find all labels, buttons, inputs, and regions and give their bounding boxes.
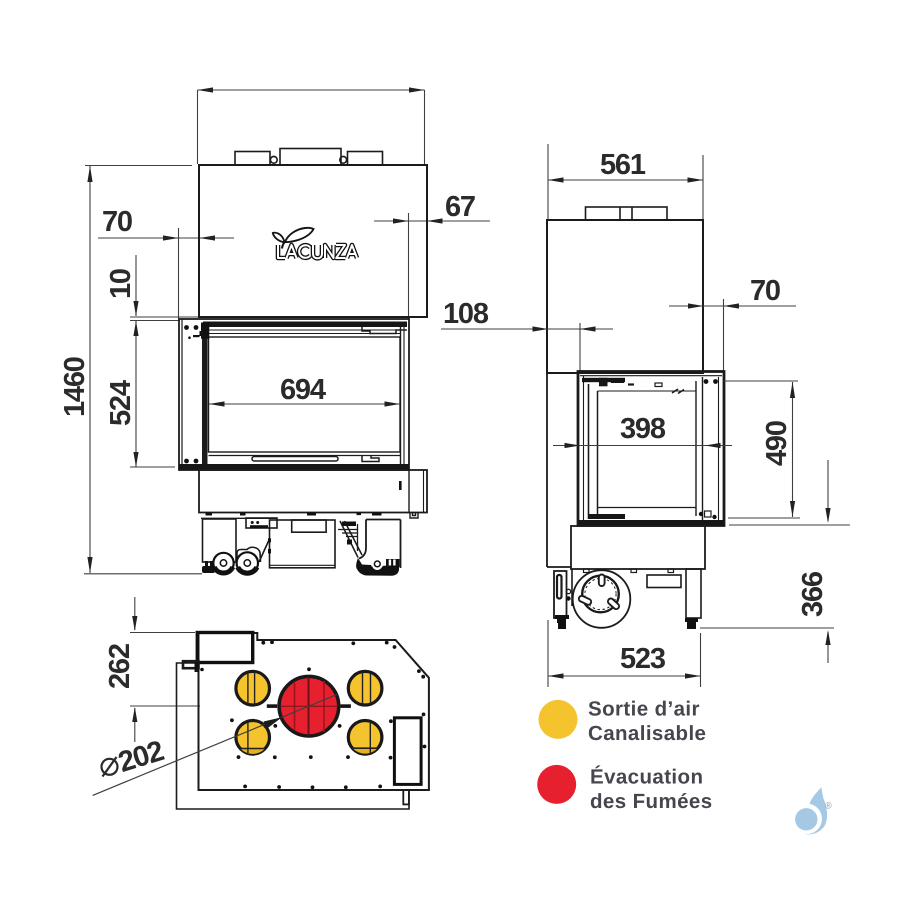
svg-text:523: 523 [620, 643, 666, 675]
svg-text:67: 67 [445, 191, 475, 223]
svg-text:Canalisable: Canalisable [588, 722, 706, 745]
svg-text:366: 366 [797, 571, 829, 617]
svg-text:Sortie d’air: Sortie d’air [588, 698, 700, 721]
svg-text:®: ® [825, 801, 832, 811]
svg-text:262: 262 [104, 644, 136, 689]
svg-text:694: 694 [280, 374, 326, 406]
svg-text:108: 108 [443, 298, 489, 330]
svg-text:1460: 1460 [59, 357, 91, 417]
svg-text:Évacuation: Évacuation [590, 764, 703, 788]
svg-text:70: 70 [750, 275, 780, 307]
svg-text:524: 524 [105, 380, 137, 426]
svg-text:des Fumées: des Fumées [590, 790, 713, 813]
svg-text:70: 70 [102, 206, 132, 238]
svg-text:561: 561 [600, 149, 646, 181]
svg-text:490: 490 [761, 421, 793, 466]
svg-text:10: 10 [105, 269, 137, 299]
svg-text:398: 398 [620, 413, 666, 445]
